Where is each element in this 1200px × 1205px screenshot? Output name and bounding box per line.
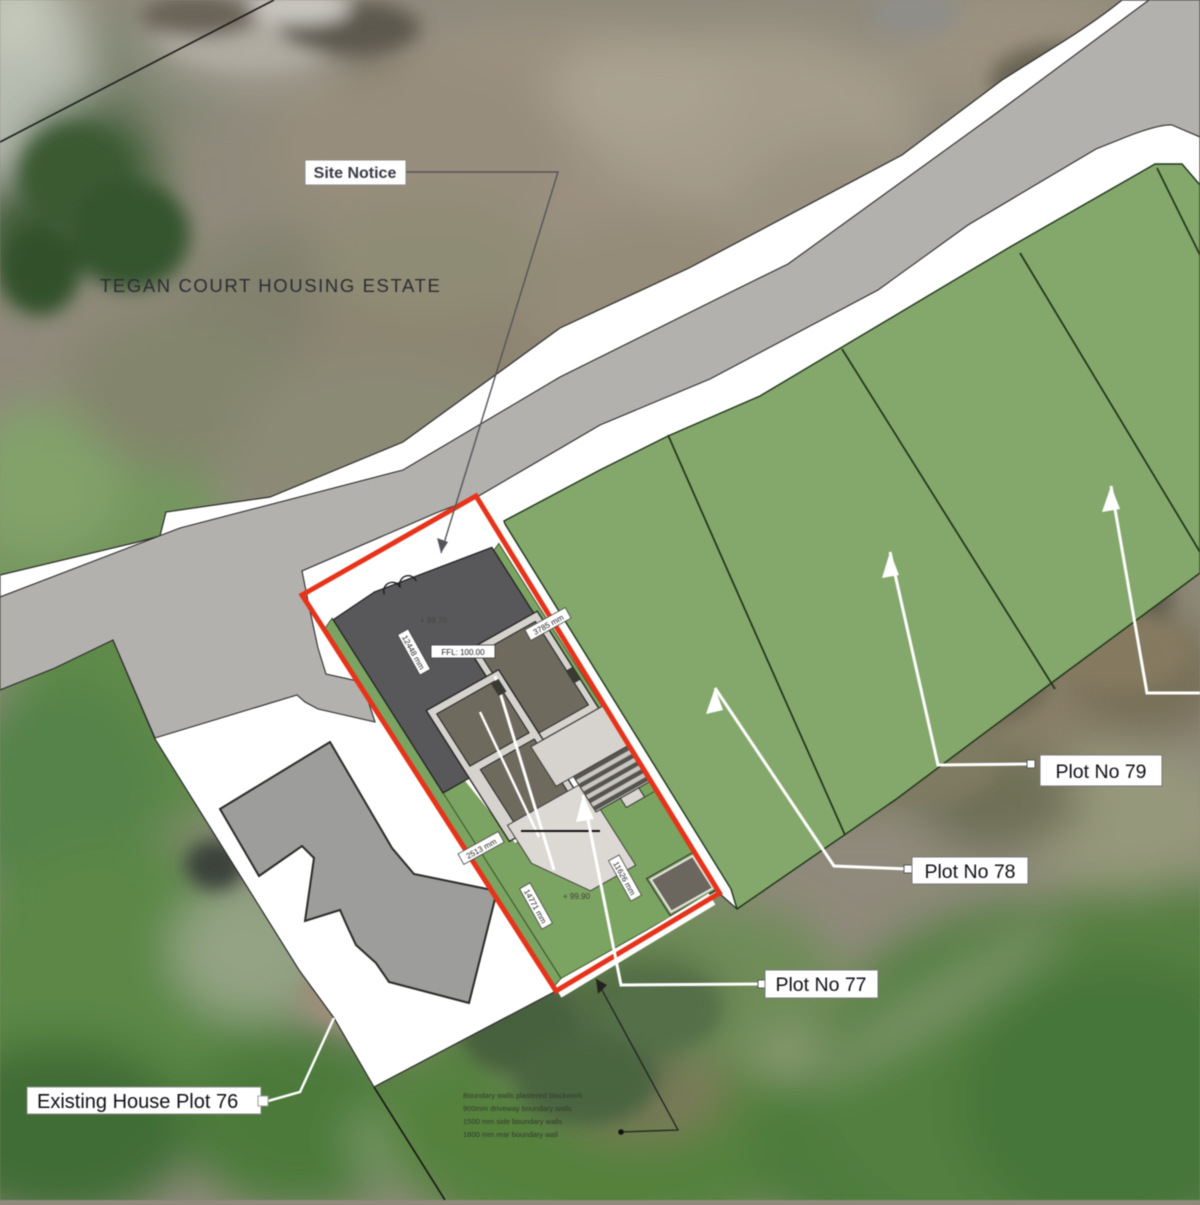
svg-text:FFL: 100.00: FFL: 100.00	[441, 648, 485, 657]
svg-text:900mm driveway boundary walls: 900mm driveway boundary walls	[463, 1104, 572, 1113]
svg-text:+ 99.90: + 99.90	[563, 892, 590, 901]
svg-text:Site Notice: Site Notice	[314, 165, 397, 182]
svg-text:Plot No 77: Plot No 77	[775, 974, 866, 996]
svg-text:+ 99.70: + 99.70	[420, 616, 447, 625]
svg-text:1500 mm side boundary walls: 1500 mm side boundary walls	[463, 1117, 562, 1126]
svg-text:Existing House Plot 76: Existing House Plot 76	[37, 1091, 238, 1113]
svg-text:TEGAN COURT HOUSING ESTATE: TEGAN COURT HOUSING ESTATE	[100, 275, 441, 296]
svg-text:Plot No 79: Plot No 79	[1055, 761, 1146, 783]
svg-text:Boundary walls plastered block: Boundary walls plastered blockwork	[463, 1091, 582, 1100]
svg-text:1800 mm rear boundary wall: 1800 mm rear boundary wall	[463, 1130, 558, 1139]
svg-text:Plot No 78: Plot No 78	[924, 861, 1015, 883]
